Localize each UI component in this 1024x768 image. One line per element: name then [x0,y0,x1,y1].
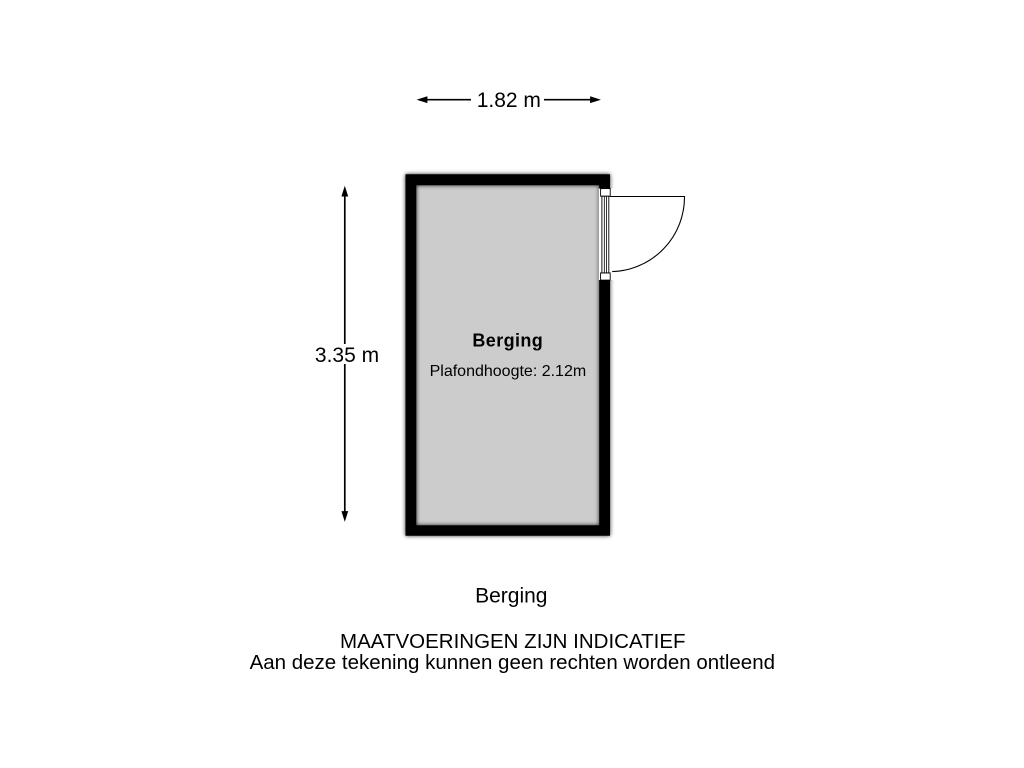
svg-text:3.35 m: 3.35 m [315,344,379,367]
svg-text:Berging: Berging [472,331,543,351]
svg-text:1.82 m: 1.82 m [477,89,541,112]
svg-text:Berging: Berging [475,585,547,608]
svg-text:Aan deze tekening kunnen geen: Aan deze tekening kunnen geen rechten wo… [250,651,775,674]
svg-text:Plafondhoogte: 2.12m: Plafondhoogte: 2.12m [430,363,587,380]
svg-text:MAATVOERINGEN ZIJN INDICATIEF: MAATVOERINGEN ZIJN INDICATIEF [340,630,685,653]
